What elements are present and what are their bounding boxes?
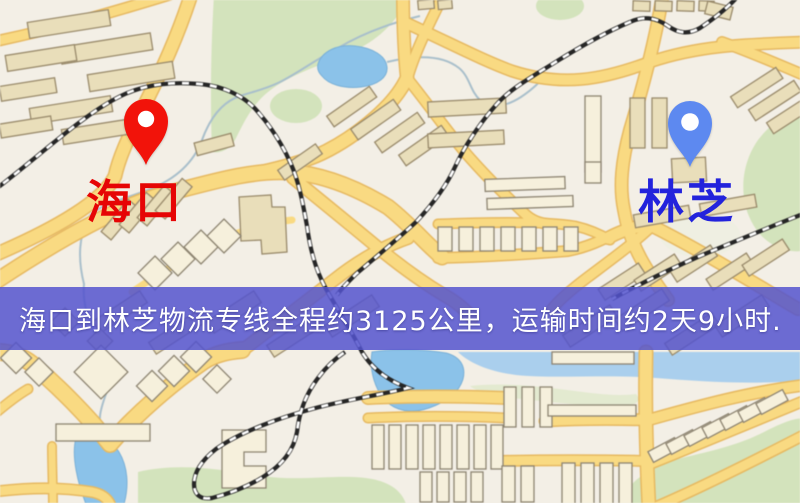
route-banner: 海口到林芝物流专线全程约3125公里，运输时间约2天9小时.	[0, 287, 800, 350]
map-canvas	[0, 0, 800, 503]
destination-pin-icon	[660, 96, 720, 170]
origin-city-label: 海口	[86, 179, 184, 225]
destination-city-label: 林芝	[638, 179, 736, 225]
route-banner-text: 海口到林芝物流专线全程约3125公里，运输时间约2天9小时.	[19, 299, 782, 338]
origin-pin-icon	[116, 94, 176, 168]
map-container: 海口到林芝物流专线全程约3125公里，运输时间约2天9小时. 海口 林芝	[0, 0, 800, 503]
